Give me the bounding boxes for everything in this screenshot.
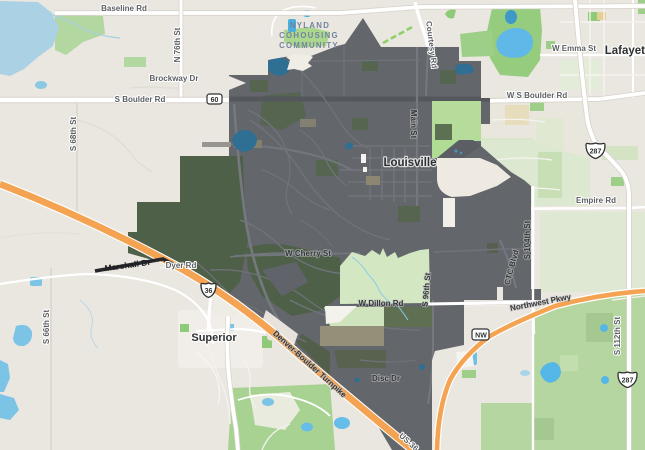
svg-text:COMMUNITY: COMMUNITY — [279, 41, 339, 50]
svg-text:Lafayette: Lafayette — [605, 45, 645, 57]
svg-text:W Dillon Rd: W Dillon Rd — [359, 299, 404, 308]
svg-text:S 68th St: S 68th St — [69, 117, 78, 152]
svg-text:Empire Rd: Empire Rd — [576, 196, 616, 205]
svg-text:Louisville: Louisville — [383, 157, 436, 169]
svg-text:Disc Dr: Disc Dr — [372, 374, 400, 383]
svg-text:Dyer Rd: Dyer Rd — [166, 261, 197, 270]
svg-text:Main St: Main St — [409, 110, 418, 139]
svg-text:Superior: Superior — [191, 332, 237, 344]
svg-text:W Emma St: W Emma St — [552, 44, 596, 53]
svg-text:S 112th St: S 112th St — [613, 317, 622, 356]
svg-text:287: 287 — [590, 149, 602, 156]
svg-text:NYLAND: NYLAND — [290, 21, 330, 30]
svg-text:W Cherry St: W Cherry St — [285, 249, 331, 258]
svg-text:S 104th St: S 104th St — [523, 220, 532, 259]
svg-text:36: 36 — [205, 288, 213, 295]
svg-text:COHOUSING: COHOUSING — [279, 31, 339, 40]
svg-text:S 66th St: S 66th St — [42, 310, 51, 345]
svg-text:N 76th St: N 76th St — [173, 27, 182, 62]
svg-text:Baseline Rd: Baseline Rd — [101, 4, 147, 13]
svg-text:Brockway Dr: Brockway Dr — [150, 74, 199, 83]
svg-text:S Boulder Rd: S Boulder Rd — [115, 95, 166, 104]
svg-text:287: 287 — [622, 378, 634, 385]
svg-text:60: 60 — [211, 97, 219, 104]
svg-text:NW: NW — [475, 333, 487, 340]
svg-text:W S Boulder Rd: W S Boulder Rd — [507, 91, 568, 100]
